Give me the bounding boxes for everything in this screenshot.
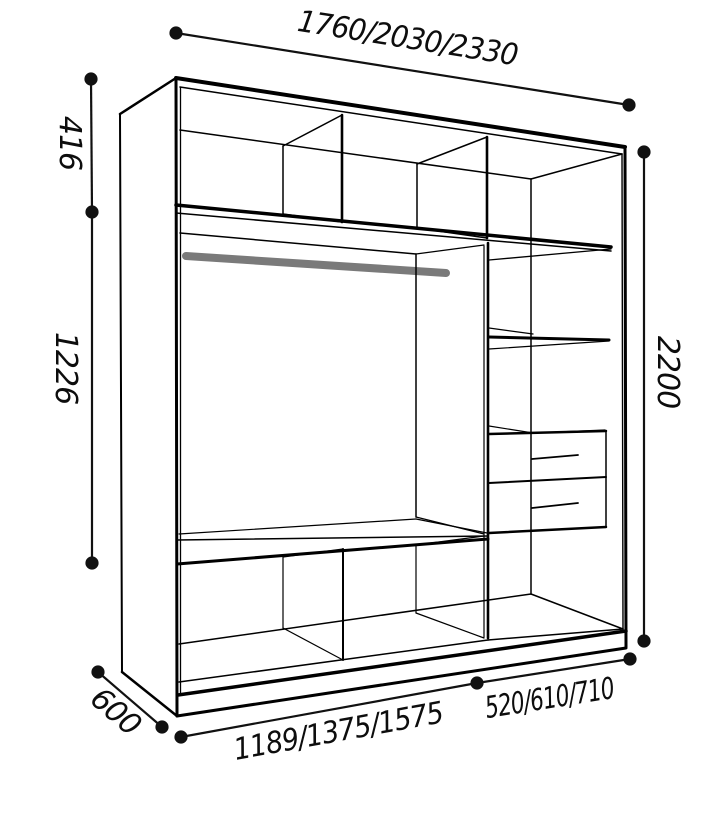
dimension-hanging-section-height: 1226: [48, 212, 99, 570]
right-column-shelf: [489, 328, 609, 349]
diagram-canvas: 1760/2030/2330 416 1226 2200 600: [0, 0, 707, 813]
bottom-shelf-right-top-edge: [416, 519, 487, 533]
drawer-handle-bottom: [532, 503, 578, 508]
bottom-shelf-front-bottom-edge: [177, 539, 488, 564]
dimension-dot: [155, 720, 168, 733]
hanging-rod: [186, 256, 446, 273]
top-shelf-underside-back-edge: [180, 233, 416, 254]
drawer-top-front-edge: [489, 431, 606, 434]
dim-label-main-section-width: 1189/1375/1575: [231, 695, 446, 767]
dimension-depth: 600: [83, 665, 168, 742]
dimension-dot: [622, 98, 635, 111]
right-column: [489, 328, 609, 533]
bottom-shelf-back-edge: [179, 519, 416, 534]
top-divider-left: [283, 115, 342, 222]
dimension-dot: [637, 145, 650, 158]
dim-label-hanging-section-height: 1226: [48, 332, 83, 404]
dim-label-total-height: 2200: [650, 336, 685, 408]
interior-top-front-edge: [180, 87, 622, 154]
dimension-dot: [169, 26, 182, 39]
dimension-total-height: 2200: [637, 145, 685, 647]
dim-label-total-width: 1760/2030/2330: [295, 4, 520, 73]
dimension-dot: [637, 634, 650, 647]
interior-top-back-edge: [180, 130, 531, 179]
dimension-dot: [174, 730, 187, 743]
drawer-bottom-edge: [489, 527, 606, 533]
carcass-front-right-inner-edge: [622, 154, 623, 629]
carcass-front-right-edge: [625, 147, 626, 647]
drawer-divider-edge: [489, 477, 606, 483]
bottom-shelf-front-top-edge: [177, 536, 488, 540]
right-wall-top-edge: [531, 154, 622, 179]
dim-label-depth: 600: [83, 681, 147, 743]
dim-label-top-section-height: 416: [52, 116, 87, 170]
drawer-unit: [489, 426, 606, 533]
left-panel-outer-edge: [120, 114, 122, 672]
bottom-dividers: [283, 536, 484, 660]
dimension-dot: [85, 556, 98, 569]
dimension-dot: [91, 665, 104, 678]
dimension-dot: [623, 652, 636, 665]
dimension-side-section-width: 520/610/710: [477, 652, 637, 726]
dimension-top-section-height: 416: [52, 72, 99, 218]
top-divider-middle: [417, 137, 487, 238]
bottom-divider-left: [283, 549, 343, 660]
carcass-front-left-edge: [176, 78, 177, 716]
top-shelf: [176, 205, 611, 260]
top-shelf-underside-right-edge: [489, 249, 611, 260]
top-shelf-front-bottom-edge: [176, 213, 611, 251]
middle-divider-top-edge: [416, 245, 484, 254]
drawer-handle-top: [532, 455, 578, 459]
top-shelf-front-edge: [176, 205, 611, 247]
dimension-dot: [84, 72, 97, 85]
middle-divider: [416, 243, 488, 638]
right-wall-bottom-edge: [531, 594, 623, 629]
left-panel-top-edge: [120, 78, 176, 114]
wardrobe-dimension-diagram: 1760/2030/2330 416 1226 2200 600: [0, 0, 707, 813]
bottom-divider-middle: [416, 536, 484, 638]
carcass-top-front-edge: [176, 78, 625, 147]
wardrobe-carcass: [120, 78, 626, 716]
